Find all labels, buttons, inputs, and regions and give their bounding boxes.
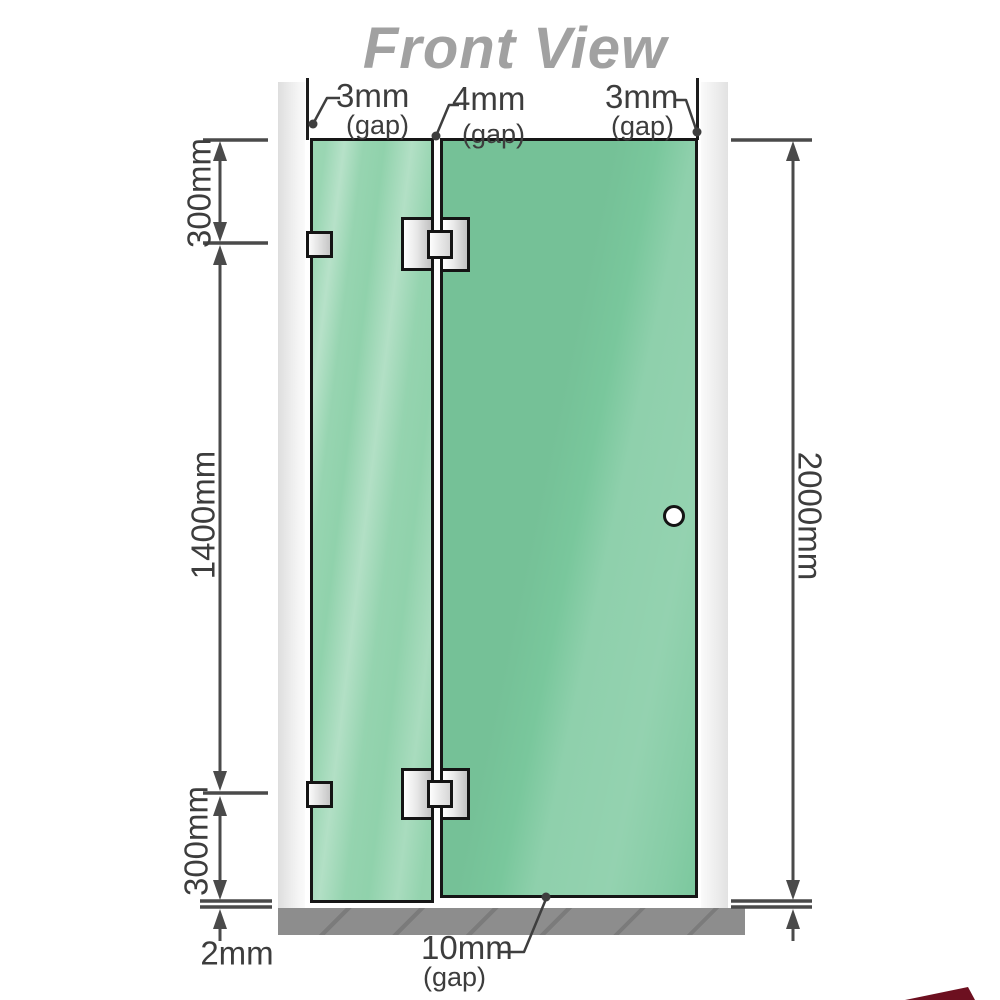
dimension-label-left-bottom: 300mm: [180, 786, 213, 896]
dimension-label-left-middle: 1400mm: [187, 451, 220, 579]
gap-label-top-right: 3mm (gap): [605, 81, 678, 140]
dimension-label-right-total: 2000mm: [794, 452, 827, 580]
dimension-lines-layer: [0, 0, 1000, 1000]
gap-label-top-left: 3mm (gap): [336, 80, 409, 139]
gap-value: 4mm: [452, 83, 525, 115]
gap-value: 10mm: [421, 932, 513, 964]
gap-label-bottom: 10mm (gap): [421, 932, 513, 991]
gap-unit: (gap): [452, 121, 525, 147]
dimension-label-left-top: 300mm: [183, 138, 216, 248]
logo-corner-mark: [905, 987, 975, 1000]
gap-unit: (gap): [605, 113, 678, 139]
gap-unit: (gap): [421, 964, 513, 990]
front-view-diagram: Front View: [0, 0, 1000, 1000]
gap-unit: (gap): [336, 112, 409, 138]
gap-value: 3mm: [336, 80, 409, 112]
gap-label-top-middle: 4mm (gap): [452, 83, 525, 148]
dimension-label-floor-clearance: 2mm: [200, 937, 273, 970]
gap-value: 3mm: [605, 81, 678, 113]
